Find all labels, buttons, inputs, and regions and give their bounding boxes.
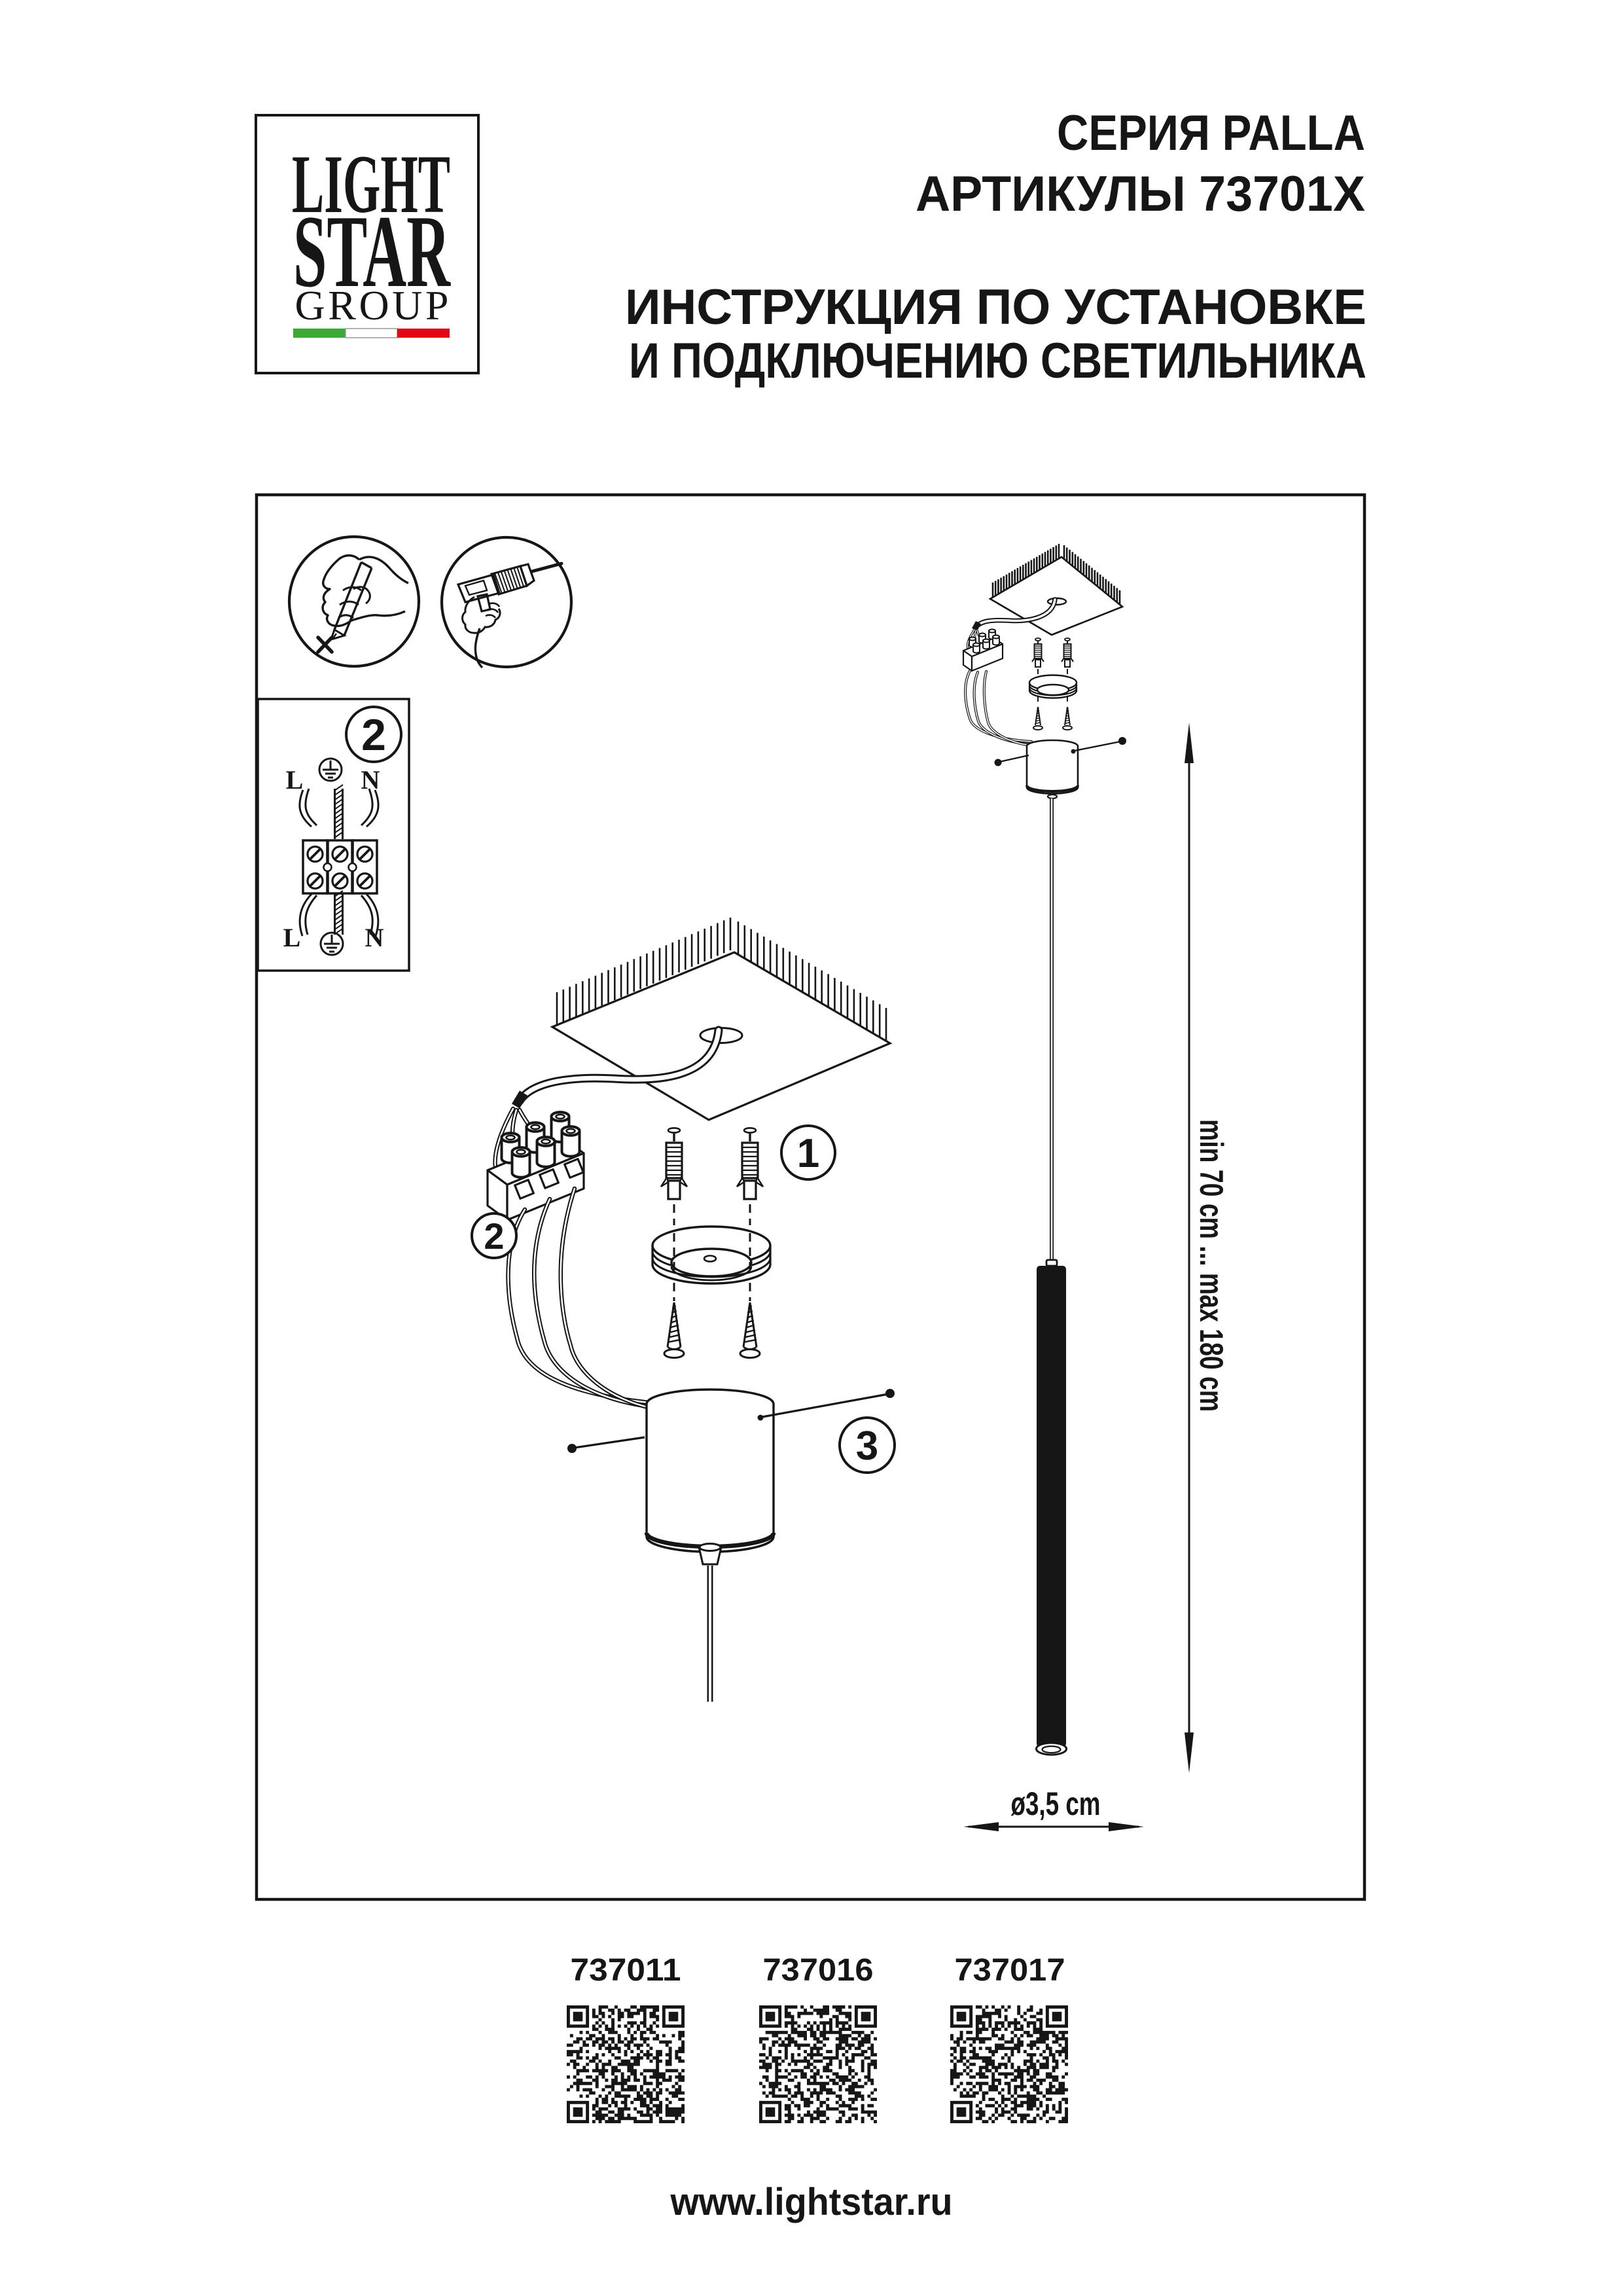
svg-text:www.lightstar.ru: www.lightstar.ru: [670, 2181, 953, 2223]
svg-text:ИНСТРУКЦИЯ ПО УСТАНОВКЕ: ИНСТРУКЦИЯ ПО УСТАНОВКЕ: [625, 279, 1366, 335]
svg-text:L: L: [283, 923, 301, 952]
svg-text:L: L: [286, 765, 304, 795]
svg-text:ø3,5 cm: ø3,5 cm: [1011, 1785, 1101, 1822]
svg-text:2: 2: [484, 1215, 504, 1257]
svg-text:3: 3: [856, 1424, 878, 1469]
svg-text:N: N: [365, 923, 384, 952]
svg-text:И ПОДКЛЮЧЕНИЮ СВЕТИЛЬНИКА: И ПОДКЛЮЧЕНИЮ СВЕТИЛЬНИКА: [629, 333, 1366, 389]
svg-text:min 70 cm ... max 180 cm: min 70 cm ... max 180 cm: [1193, 1119, 1230, 1412]
svg-text:СЕРИЯ PALLA: СЕРИЯ PALLA: [1057, 105, 1365, 161]
svg-text:737011: 737011: [571, 1953, 681, 1988]
svg-text:737016: 737016: [763, 1953, 874, 1988]
svg-text:GROUP: GROUP: [295, 282, 449, 329]
svg-text:1: 1: [797, 1131, 819, 1176]
svg-text:2: 2: [361, 710, 386, 760]
svg-text:АРТИКУЛЫ 73701X: АРТИКУЛЫ 73701X: [916, 166, 1365, 222]
svg-text:737017: 737017: [955, 1953, 1065, 1988]
